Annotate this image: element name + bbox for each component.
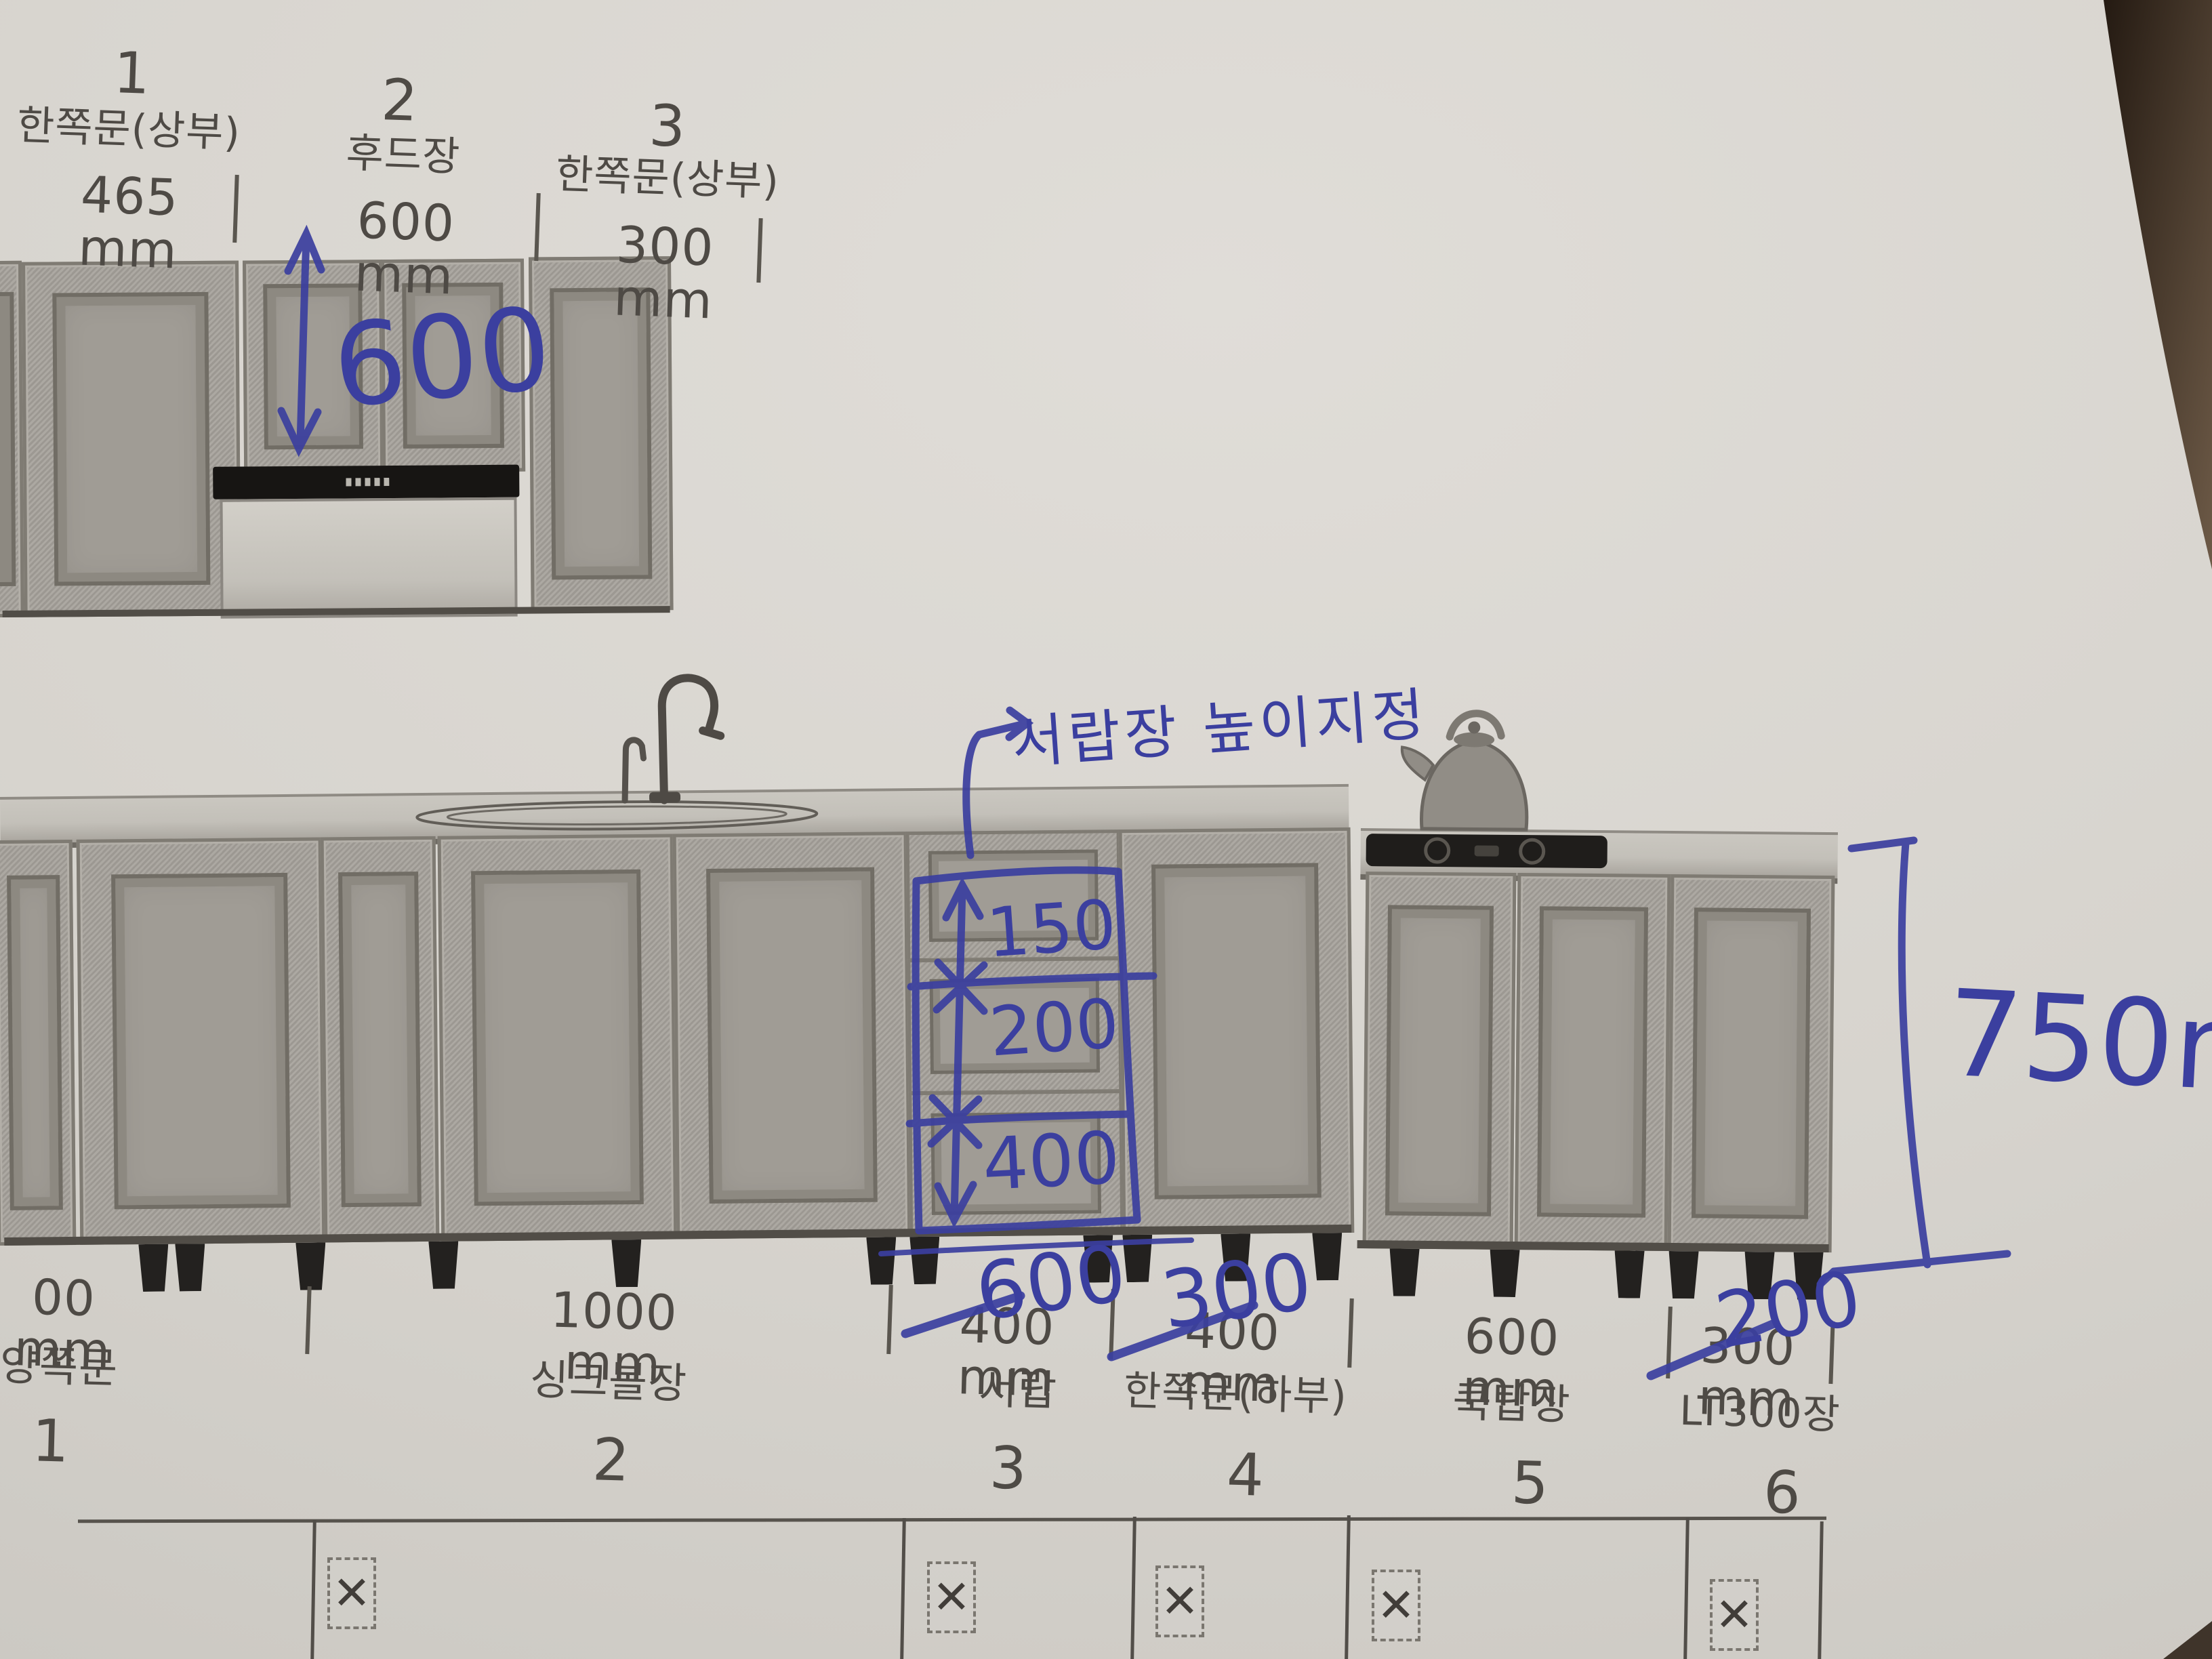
pen-drawer-dim-150: 150 bbox=[984, 884, 1119, 972]
pen-total-height-750mm: 750mm bbox=[1943, 964, 2212, 1126]
pen-drawer-dim-200: 200 bbox=[987, 983, 1122, 1071]
pen-annotation-strokes bbox=[0, 0, 2212, 1659]
pen-upper-height-600: 600 bbox=[328, 282, 556, 433]
kitchen-plan-photo: 1 한쪽문(상부) 465 mm 2 후드장 600 mm 3 한쪽문(상부) … bbox=[0, 0, 2212, 1659]
pen-drawer-dim-400: 400 bbox=[981, 1116, 1122, 1206]
